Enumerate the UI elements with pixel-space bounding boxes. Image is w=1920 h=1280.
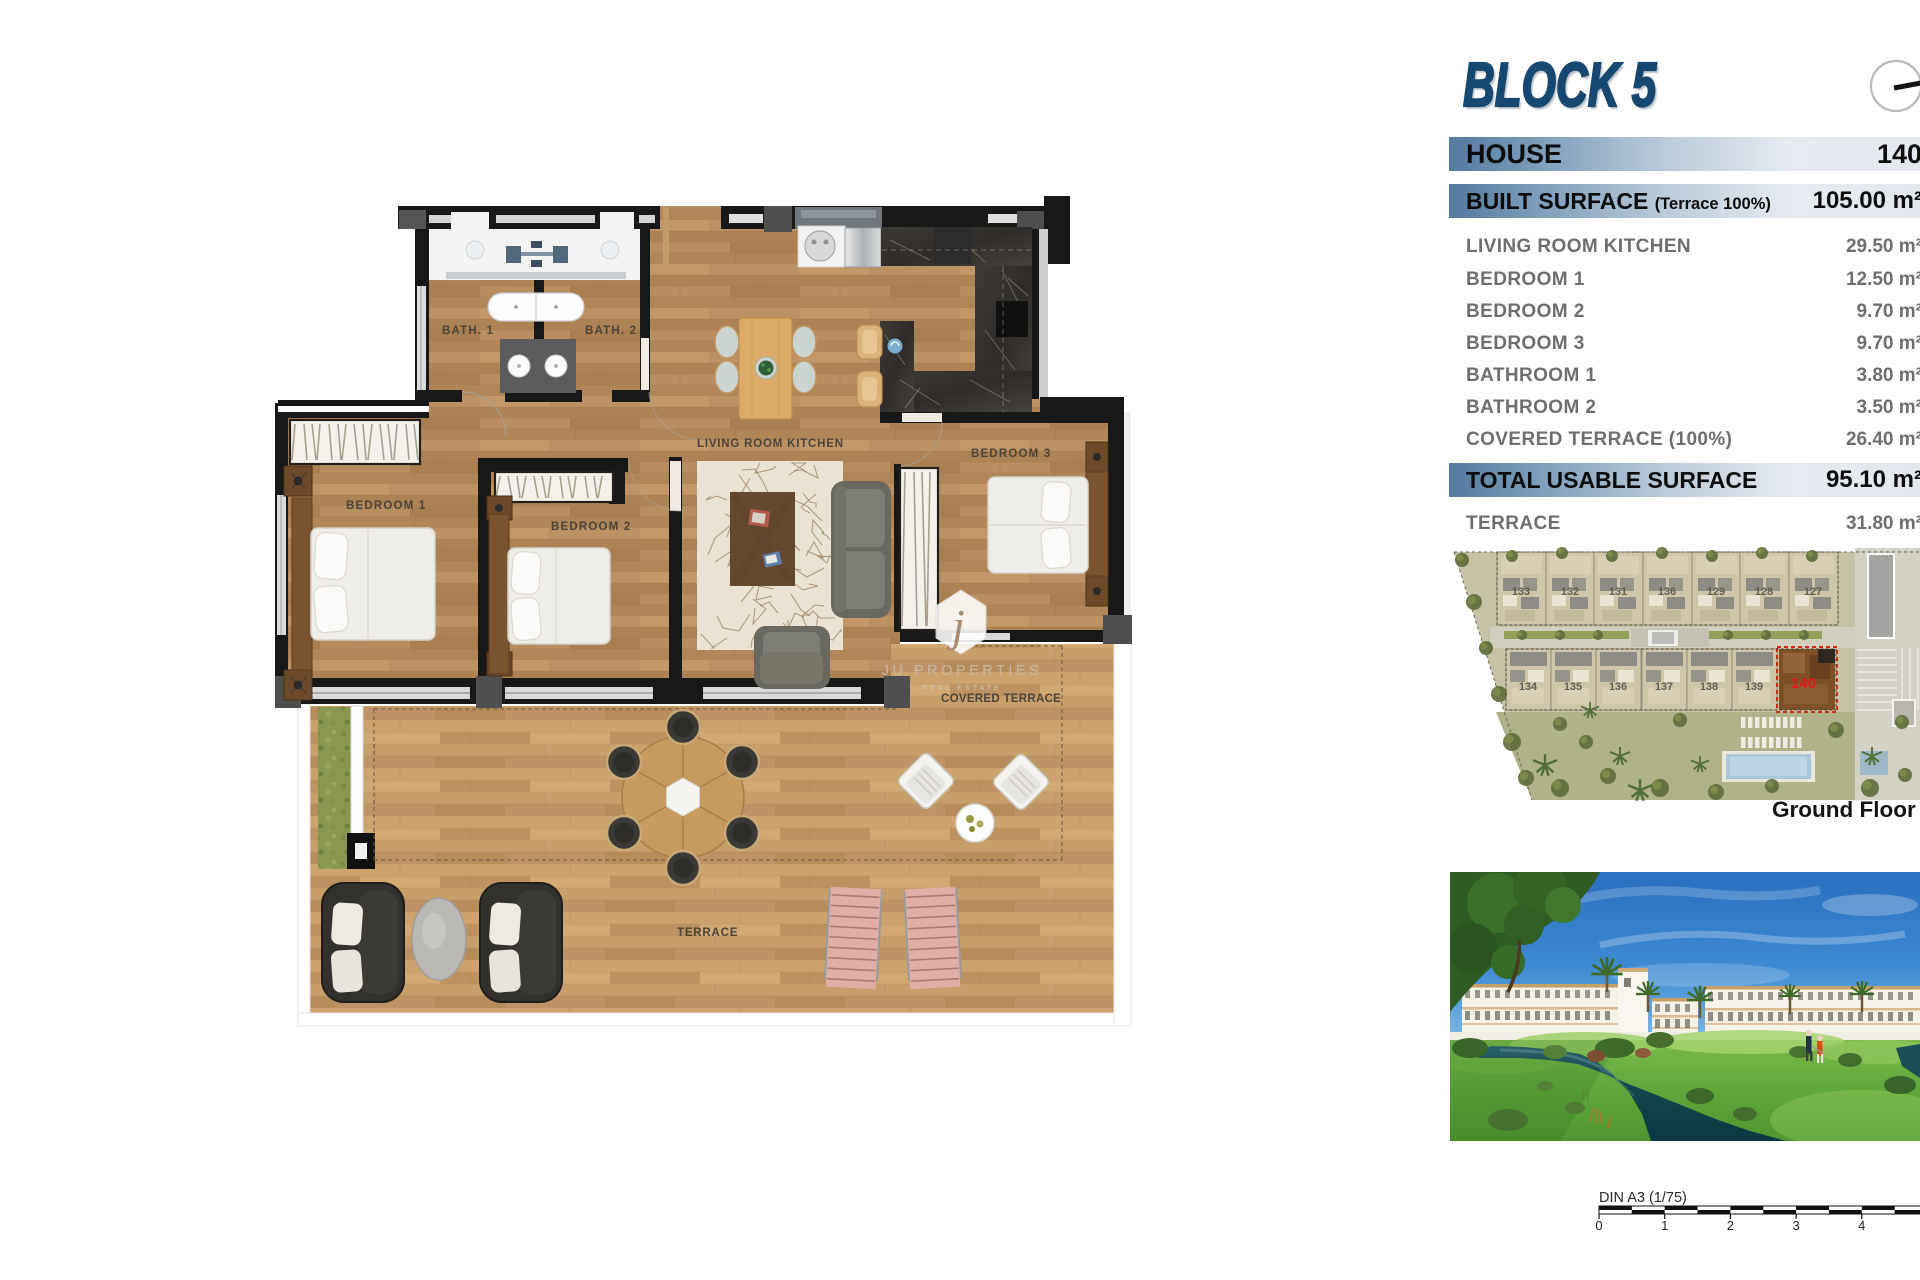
svg-text:2: 2	[1727, 1218, 1734, 1233]
svg-text:0: 0	[1595, 1218, 1602, 1233]
svg-text:3: 3	[1792, 1218, 1799, 1233]
svg-text:4: 4	[1858, 1218, 1865, 1233]
svg-text:1: 1	[1661, 1218, 1668, 1233]
